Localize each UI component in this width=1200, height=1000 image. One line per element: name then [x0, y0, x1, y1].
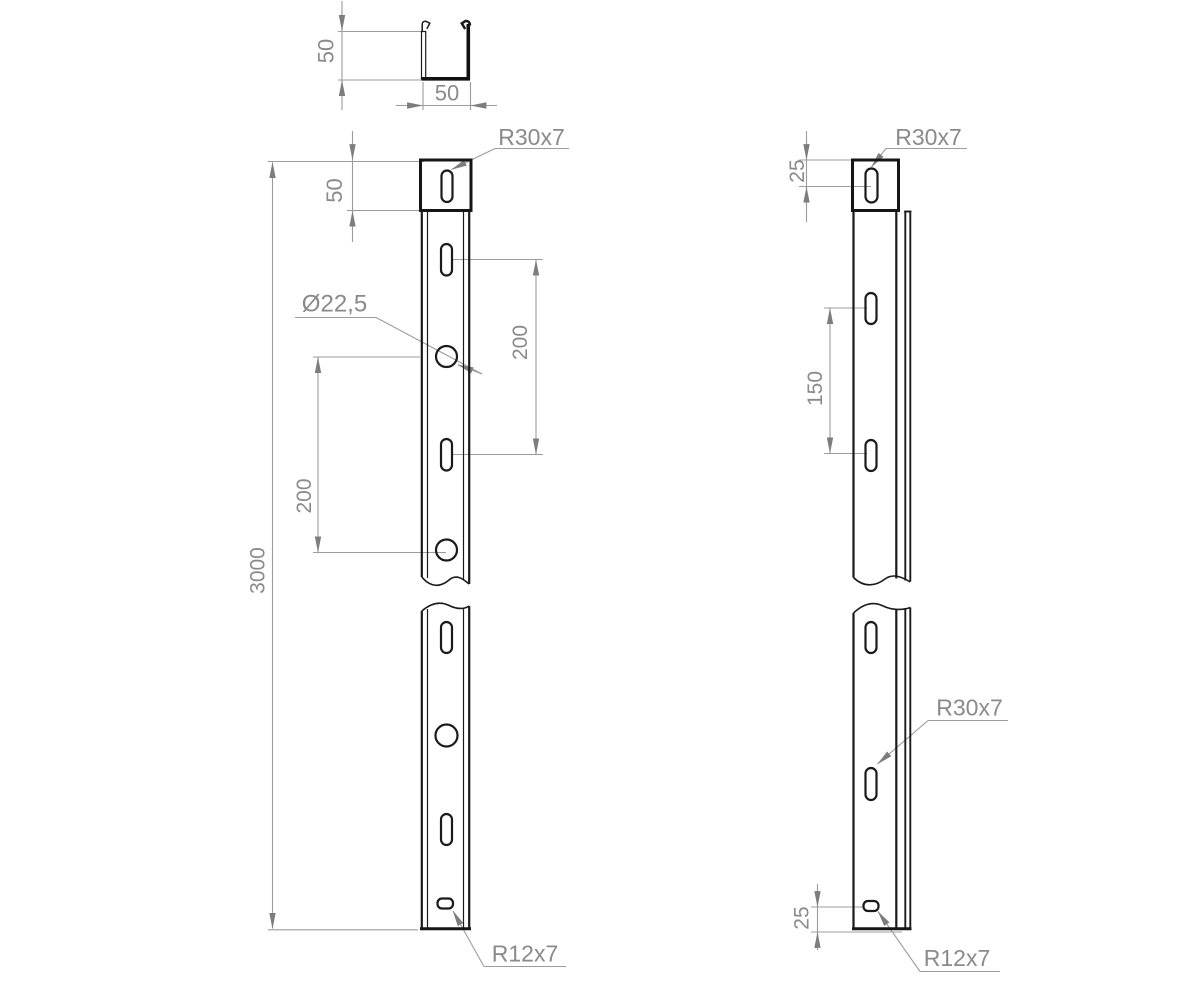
cross-section-view — [422, 21, 471, 80]
front-slot-5 — [441, 814, 452, 845]
label-front-top-slot: R30x7 — [498, 124, 564, 150]
side-slot-3 — [866, 440, 877, 471]
dim-front-lower-spacing: 200 — [293, 478, 316, 513]
side-slot-2 — [866, 293, 877, 324]
front-end-slot — [438, 899, 454, 909]
label-side-top-slot: R30x7 — [895, 124, 961, 150]
front-slot-3 — [441, 439, 452, 471]
front-view-dimensions: 50 3000 200 200 Ø22,5 R30x7 — [246, 124, 569, 967]
label-hole-diameter: Ø22,5 — [302, 290, 367, 317]
dim-side-top-offset: 25 — [786, 159, 809, 182]
drawing-canvas: 50 50 50 3000 200 200 — [0, 0, 1200, 1000]
front-hole-3 — [436, 725, 458, 747]
front-slot-2 — [441, 244, 452, 276]
dim-section-width: 50 — [435, 81, 459, 106]
side-elevation-view — [852, 160, 912, 929]
side-top-end-plate — [853, 160, 899, 211]
front-hole-2 — [436, 540, 457, 561]
dim-section-height: 50 — [314, 39, 339, 63]
dimension-layer: 50 50 50 3000 200 200 — [246, 1, 1008, 972]
side-slot-4 — [866, 622, 877, 653]
section-left-lip — [422, 21, 430, 31]
front-hole-1 — [436, 346, 457, 367]
technical-drawing: 50 50 50 3000 200 200 — [0, 0, 1200, 1000]
side-break-line-upper — [854, 576, 911, 585]
label-side-mid-slot: R30x7 — [936, 695, 1002, 721]
dim-side-hole-spacing: 150 — [804, 371, 827, 406]
front-slot-1 — [442, 171, 453, 203]
dim-side-bottom-offset: 25 — [790, 906, 813, 929]
section-left-wall — [422, 32, 426, 80]
front-slot-4 — [441, 622, 452, 653]
front-break-line-lower — [422, 603, 469, 611]
front-elevation-view — [420, 160, 471, 929]
label-front-bottom-slot: R12x7 — [492, 941, 558, 967]
dim-front-total-length: 3000 — [246, 547, 269, 594]
dim-front-upper-spacing: 200 — [509, 325, 532, 360]
front-break-line-upper — [422, 577, 469, 585]
label-side-bottom-slot: R12x7 — [924, 945, 990, 971]
side-break-line-lower — [854, 604, 911, 613]
side-end-slot — [864, 901, 879, 911]
side-slot-1 — [866, 169, 878, 203]
side-slot-5 — [866, 768, 877, 800]
dim-front-top-offset: 50 — [322, 178, 347, 202]
